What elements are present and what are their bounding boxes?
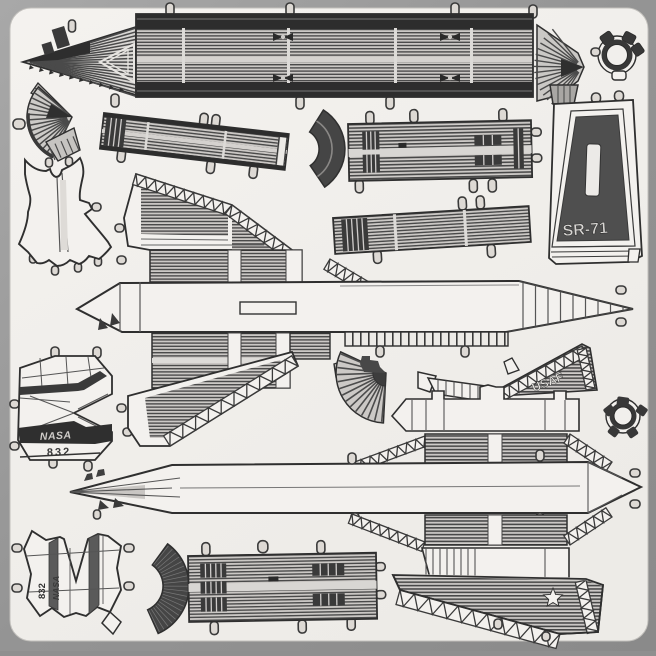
svg-text:832: 832: [37, 583, 48, 599]
svg-text:832: 832: [47, 446, 72, 459]
svg-text:NASA: NASA: [51, 576, 61, 600]
svg-text:SR-71: SR-71: [562, 220, 609, 240]
svg-text:NASA: NASA: [40, 429, 72, 443]
